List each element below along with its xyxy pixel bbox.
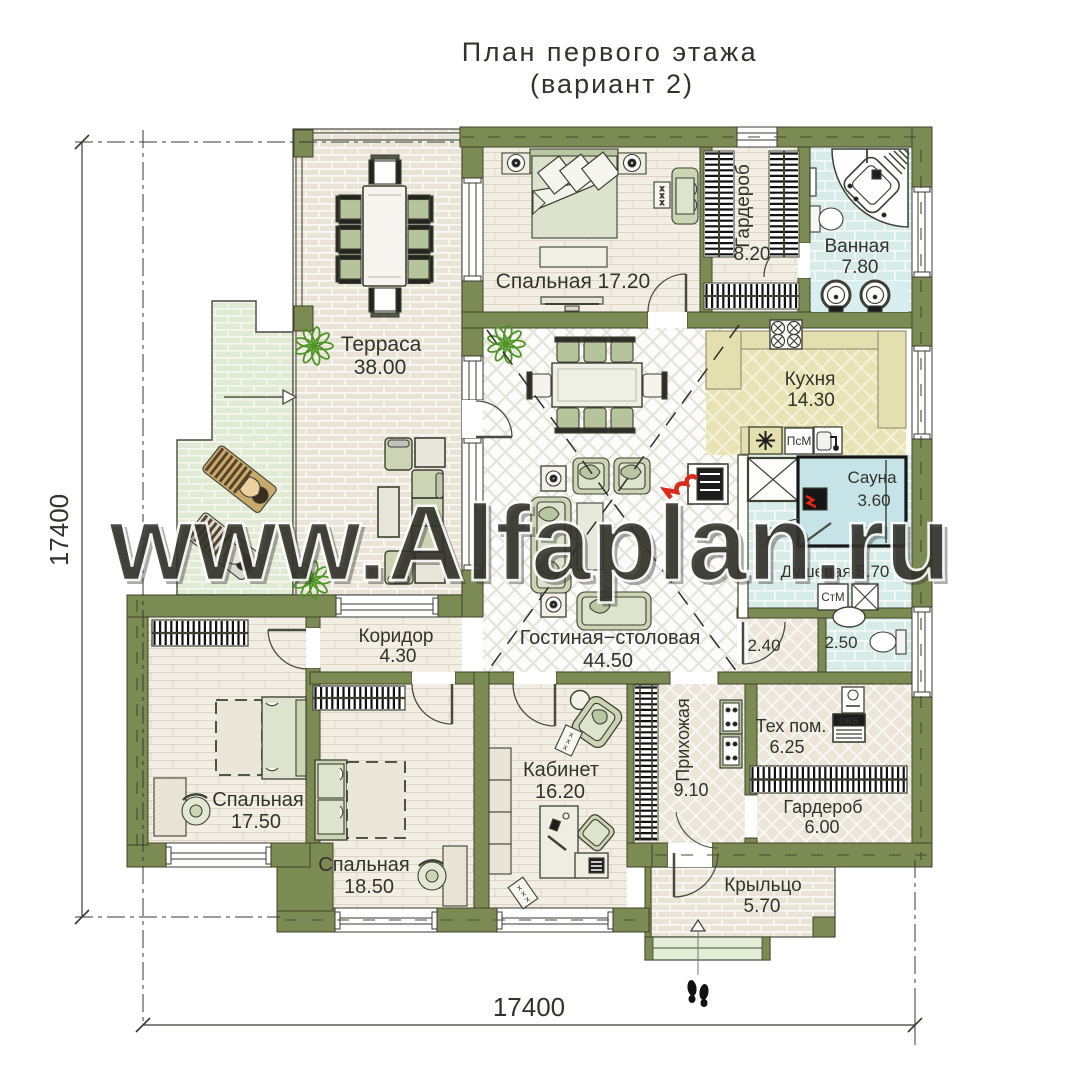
svg-text:4.30: 4.30 xyxy=(380,646,417,667)
svg-text:14.30: 14.30 xyxy=(787,390,835,411)
svg-text:Гардероб: Гардероб xyxy=(733,164,754,248)
svg-text:6.00: 6.00 xyxy=(804,817,839,837)
svg-text:Спальная: Спальная xyxy=(318,854,409,876)
svg-text:План первого этажа: План первого этажа xyxy=(462,37,758,67)
svg-text:2.50: 2.50 xyxy=(824,633,857,652)
svg-text:Кухня: Кухня xyxy=(785,369,836,390)
svg-text:7.80: 7.80 xyxy=(842,257,879,278)
svg-text:Спальная 17.20: Спальная 17.20 xyxy=(496,270,650,293)
svg-text:5.70: 5.70 xyxy=(744,896,781,917)
svg-text:8.20: 8.20 xyxy=(734,244,771,265)
svg-text:(вариант 2): (вариант 2) xyxy=(530,69,694,99)
svg-text:ОКБ: ОКБ xyxy=(839,716,859,727)
svg-text:Терраса: Терраса xyxy=(341,333,422,356)
svg-text:17.50: 17.50 xyxy=(231,811,281,833)
svg-text:44.50: 44.50 xyxy=(583,650,633,672)
svg-text:Гостиная−столовая: Гостиная−столовая xyxy=(520,627,701,649)
svg-text:6.25: 6.25 xyxy=(769,737,804,757)
svg-text:Спальная: Спальная xyxy=(212,789,303,811)
svg-text:Гардероб: Гардероб xyxy=(783,797,862,817)
svg-text:17400: 17400 xyxy=(44,494,74,566)
svg-text:38.00: 38.00 xyxy=(354,356,407,379)
svg-text:Ванная: Ванная xyxy=(824,236,889,257)
svg-text:www.Alfaplan.ru: www.Alfaplan.ru xyxy=(108,482,951,603)
svg-text:17400: 17400 xyxy=(493,992,565,1022)
svg-text:x: x xyxy=(660,198,664,207)
svg-text:9.10: 9.10 xyxy=(673,780,708,800)
svg-text:18.50: 18.50 xyxy=(344,876,394,898)
svg-text:2.40: 2.40 xyxy=(747,636,780,655)
svg-text:Кабинет: Кабинет xyxy=(523,759,599,781)
svg-text:ПсМ: ПсМ xyxy=(787,434,812,448)
svg-text:Тех пом.: Тех пом. xyxy=(756,716,827,736)
svg-text:Коридор: Коридор xyxy=(358,626,433,647)
svg-text:Крыльцо: Крыльцо xyxy=(724,875,802,896)
svg-text:Прихожая: Прихожая xyxy=(673,698,693,781)
svg-text:16.20: 16.20 xyxy=(535,781,585,803)
